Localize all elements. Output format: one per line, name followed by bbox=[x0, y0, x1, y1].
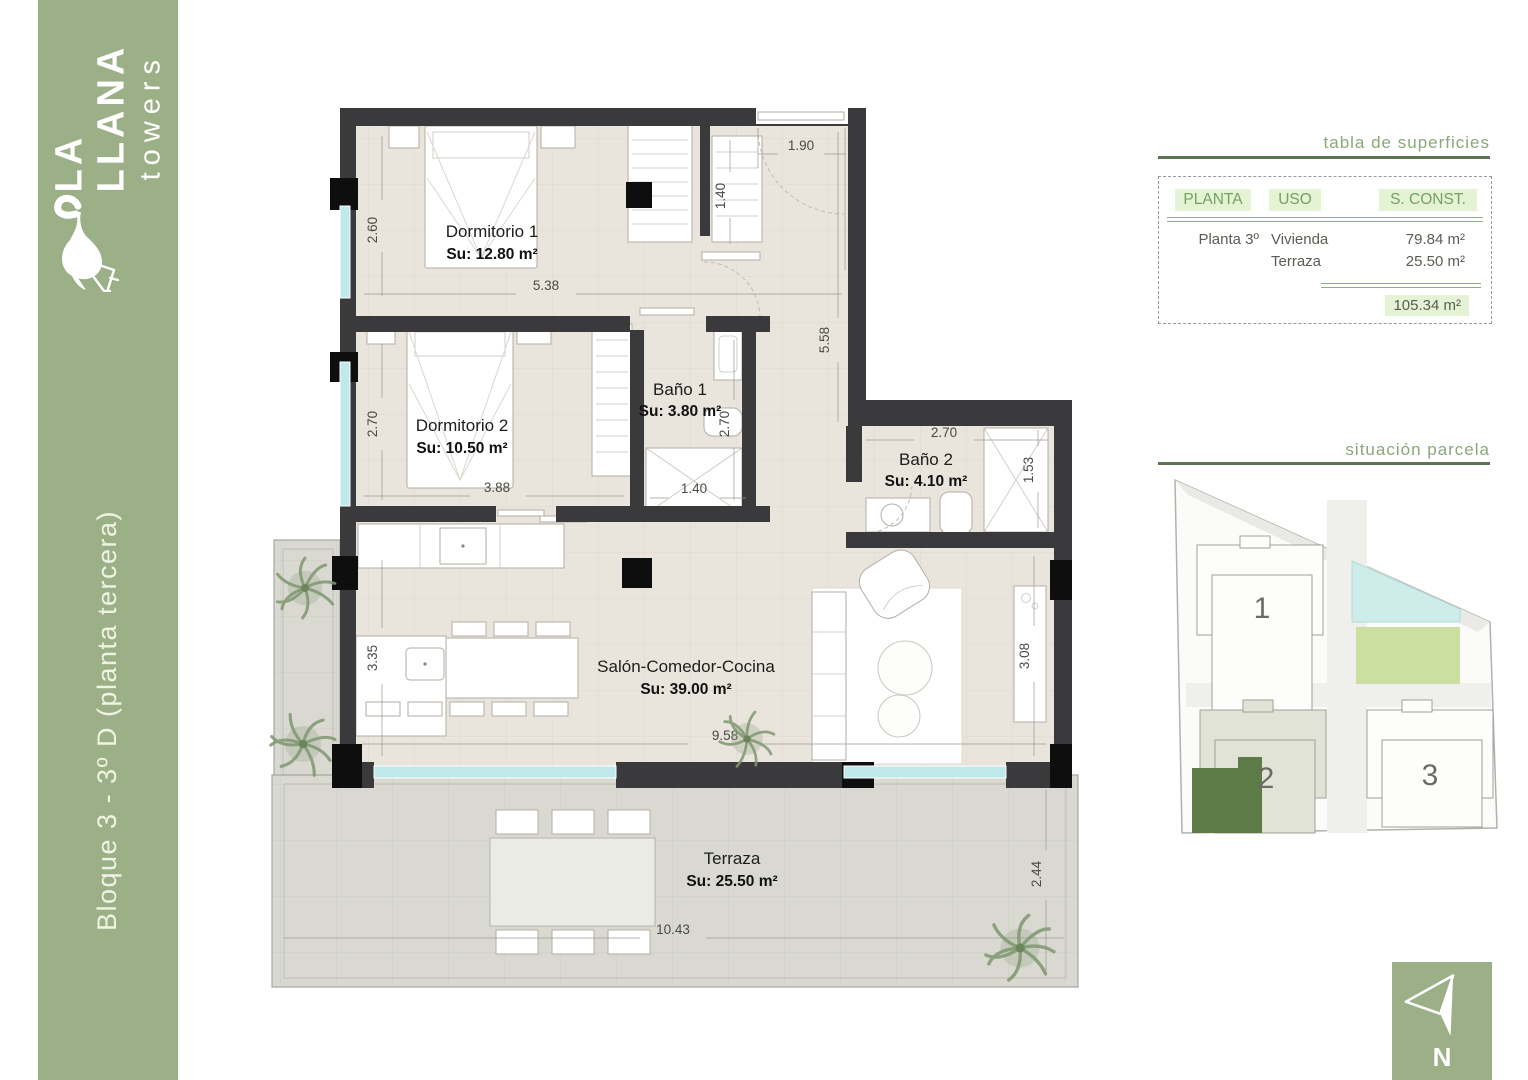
room-dormitorio2: Dormitorio 2 bbox=[416, 416, 509, 435]
room-dormitorio1-area: Su: 12.80 m² bbox=[446, 246, 537, 263]
room-bano1: Baño 1 bbox=[653, 380, 707, 399]
site-plan-title: situación parcela bbox=[1158, 440, 1490, 460]
block2-label: 2 bbox=[1258, 762, 1275, 795]
dim-entry-closet: 1.40 bbox=[713, 183, 728, 209]
dim-bano2-d: 1.53 bbox=[1021, 457, 1036, 483]
room-bano2-area: Su: 4.10 m² bbox=[885, 473, 968, 490]
site-block-2: 2 bbox=[1192, 700, 1326, 833]
room-bano1-area: Su: 3.80 m² bbox=[639, 403, 722, 420]
wardrobe bbox=[592, 324, 632, 476]
col-header-sconst: S. CONST. bbox=[1379, 189, 1477, 211]
dim-terraza-h: 2.44 bbox=[1029, 860, 1044, 887]
dim-dorm1-w: 5.38 bbox=[533, 278, 559, 293]
room-dormitorio2-area: Su: 10.50 m² bbox=[416, 440, 507, 457]
pool bbox=[1352, 561, 1460, 622]
room-terraza-area: Su: 25.50 m² bbox=[686, 873, 777, 890]
dim-bano2-w: 2.70 bbox=[931, 425, 957, 440]
row1-uso: Vivienda bbox=[1271, 231, 1361, 251]
dim-entry-w: 1.90 bbox=[788, 138, 814, 153]
room-bano2: Baño 2 bbox=[899, 450, 953, 469]
header-underline bbox=[1167, 217, 1483, 222]
floor-plan-drawing: 2.60 5.38 1.90 1.40 5.58 2.70 3.88 2.70 … bbox=[260, 95, 1090, 1000]
dim-kitchen-h: 3.35 bbox=[365, 645, 380, 671]
row1-sconst: 79.84 m² bbox=[1365, 231, 1465, 251]
room-terraza: Terraza bbox=[704, 849, 761, 868]
room-salon: Salón-Comedor-Cocina bbox=[597, 657, 775, 676]
lawn bbox=[1356, 627, 1460, 684]
dim-salon-h: 3.08 bbox=[1017, 643, 1032, 669]
terrace-dining-set bbox=[490, 810, 655, 954]
surface-table-rule bbox=[1158, 156, 1490, 159]
shower bbox=[984, 428, 1048, 532]
logo-line-2: LLANA bbox=[90, 44, 132, 193]
dim-hall-h: 5.58 bbox=[817, 327, 832, 353]
dim-dorm1-h: 2.60 bbox=[365, 217, 380, 243]
plan-title: Bloque 3 - 3º D (planta tercera) bbox=[38, 420, 178, 1020]
site-block-1: 1 bbox=[1197, 536, 1323, 712]
block3-label: 3 bbox=[1422, 759, 1439, 792]
dim-terraza-w: 10.43 bbox=[656, 922, 690, 937]
logo-line-1: LA bbox=[48, 44, 90, 193]
total-surface: 105.34 m² bbox=[1385, 295, 1469, 316]
brand-logo: LA LLANA towers bbox=[38, 18, 178, 218]
site-block-3: 3 bbox=[1367, 700, 1493, 827]
dim-dorm2-w: 3.88 bbox=[484, 480, 510, 495]
surface-table-title: tabla de superficies bbox=[1158, 133, 1490, 153]
logo-line-3: towers bbox=[132, 44, 168, 193]
highlighted-unit bbox=[1192, 757, 1262, 833]
north-label: N bbox=[1433, 1042, 1452, 1072]
room-salon-area: Su: 39.00 m² bbox=[640, 681, 731, 698]
row2-uso: Terraza bbox=[1271, 253, 1361, 273]
row2-sconst: 25.50 m² bbox=[1365, 253, 1465, 273]
block1-label: 1 bbox=[1254, 592, 1271, 625]
site-plan-drawing: 1 2 3 bbox=[1150, 465, 1510, 865]
terrace bbox=[272, 775, 1078, 987]
total-line bbox=[1321, 283, 1481, 288]
row1-planta: Planta 3º bbox=[1185, 231, 1259, 251]
dim-bano1-w: 1.40 bbox=[681, 481, 707, 496]
col-header-planta: PLANTA bbox=[1175, 189, 1251, 211]
north-arrow: N bbox=[1392, 962, 1492, 1080]
flamingo-icon bbox=[48, 192, 148, 292]
floor-plan-sheet: LA LLANA towers Bloque 3 - 3º D (planta … bbox=[0, 0, 1528, 1080]
dim-dorm2-h: 2.70 bbox=[365, 411, 380, 437]
surface-table: PLANTA USO S. CONST. Planta 3º Vivienda … bbox=[1158, 176, 1492, 324]
room-dormitorio1: Dormitorio 1 bbox=[446, 222, 539, 241]
col-header-uso: USO bbox=[1269, 189, 1321, 211]
